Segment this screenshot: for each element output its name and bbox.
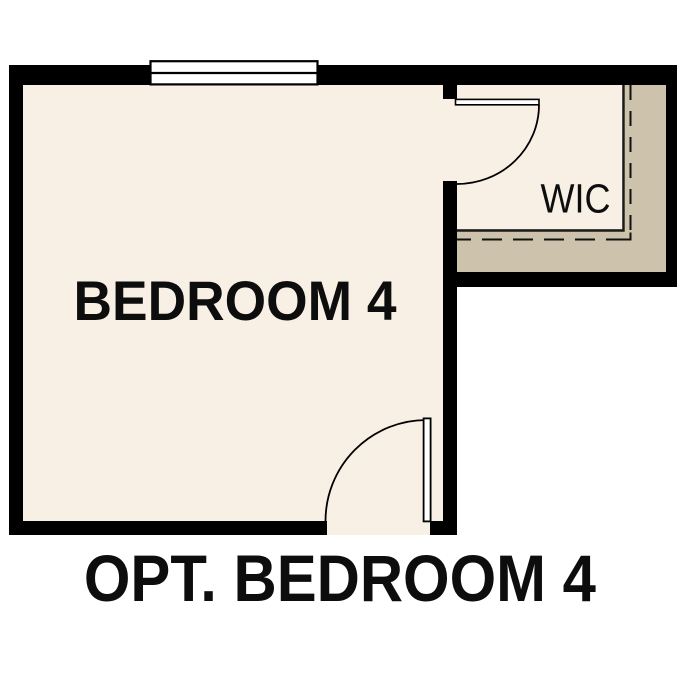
svg-text:OPT. BEDROOM 4: OPT. BEDROOM 4 (84, 541, 596, 615)
svg-text:WIC: WIC (541, 176, 611, 222)
svg-text:BEDROOM 4: BEDROOM 4 (74, 269, 397, 332)
